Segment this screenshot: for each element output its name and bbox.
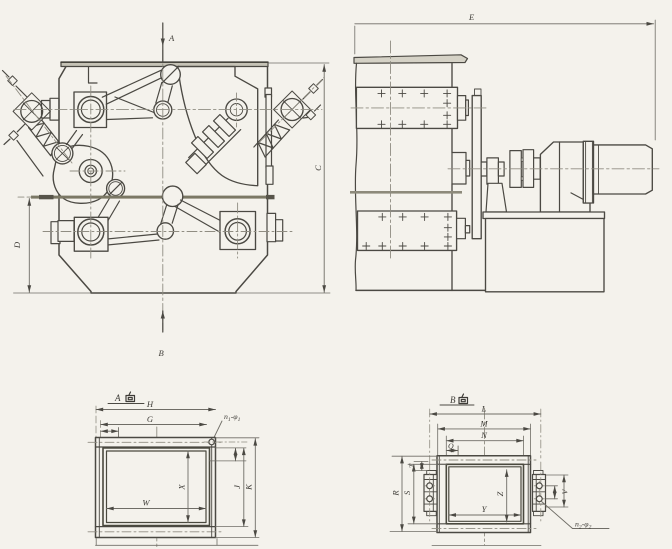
svg-text:C: C: [313, 165, 323, 171]
svg-text:B: B: [159, 348, 165, 358]
svg-text:D: D: [12, 241, 22, 249]
svg-text:M: M: [479, 419, 488, 429]
svg-text:Q: Q: [448, 442, 454, 451]
svg-text:R: R: [391, 490, 401, 497]
svg-text:H: H: [146, 399, 154, 409]
svg-text:A: A: [114, 393, 121, 403]
svg-text:A: A: [168, 33, 175, 43]
svg-text:T: T: [408, 463, 417, 468]
svg-text:Z: Z: [495, 491, 505, 496]
svg-text:G: G: [147, 414, 154, 424]
svg-text:E: E: [468, 12, 475, 22]
svg-text:X: X: [177, 484, 187, 491]
svg-text:S: S: [402, 490, 412, 495]
svg-text:B: B: [450, 395, 456, 405]
svg-text:W: W: [142, 498, 150, 508]
svg-text:L: L: [481, 404, 487, 414]
